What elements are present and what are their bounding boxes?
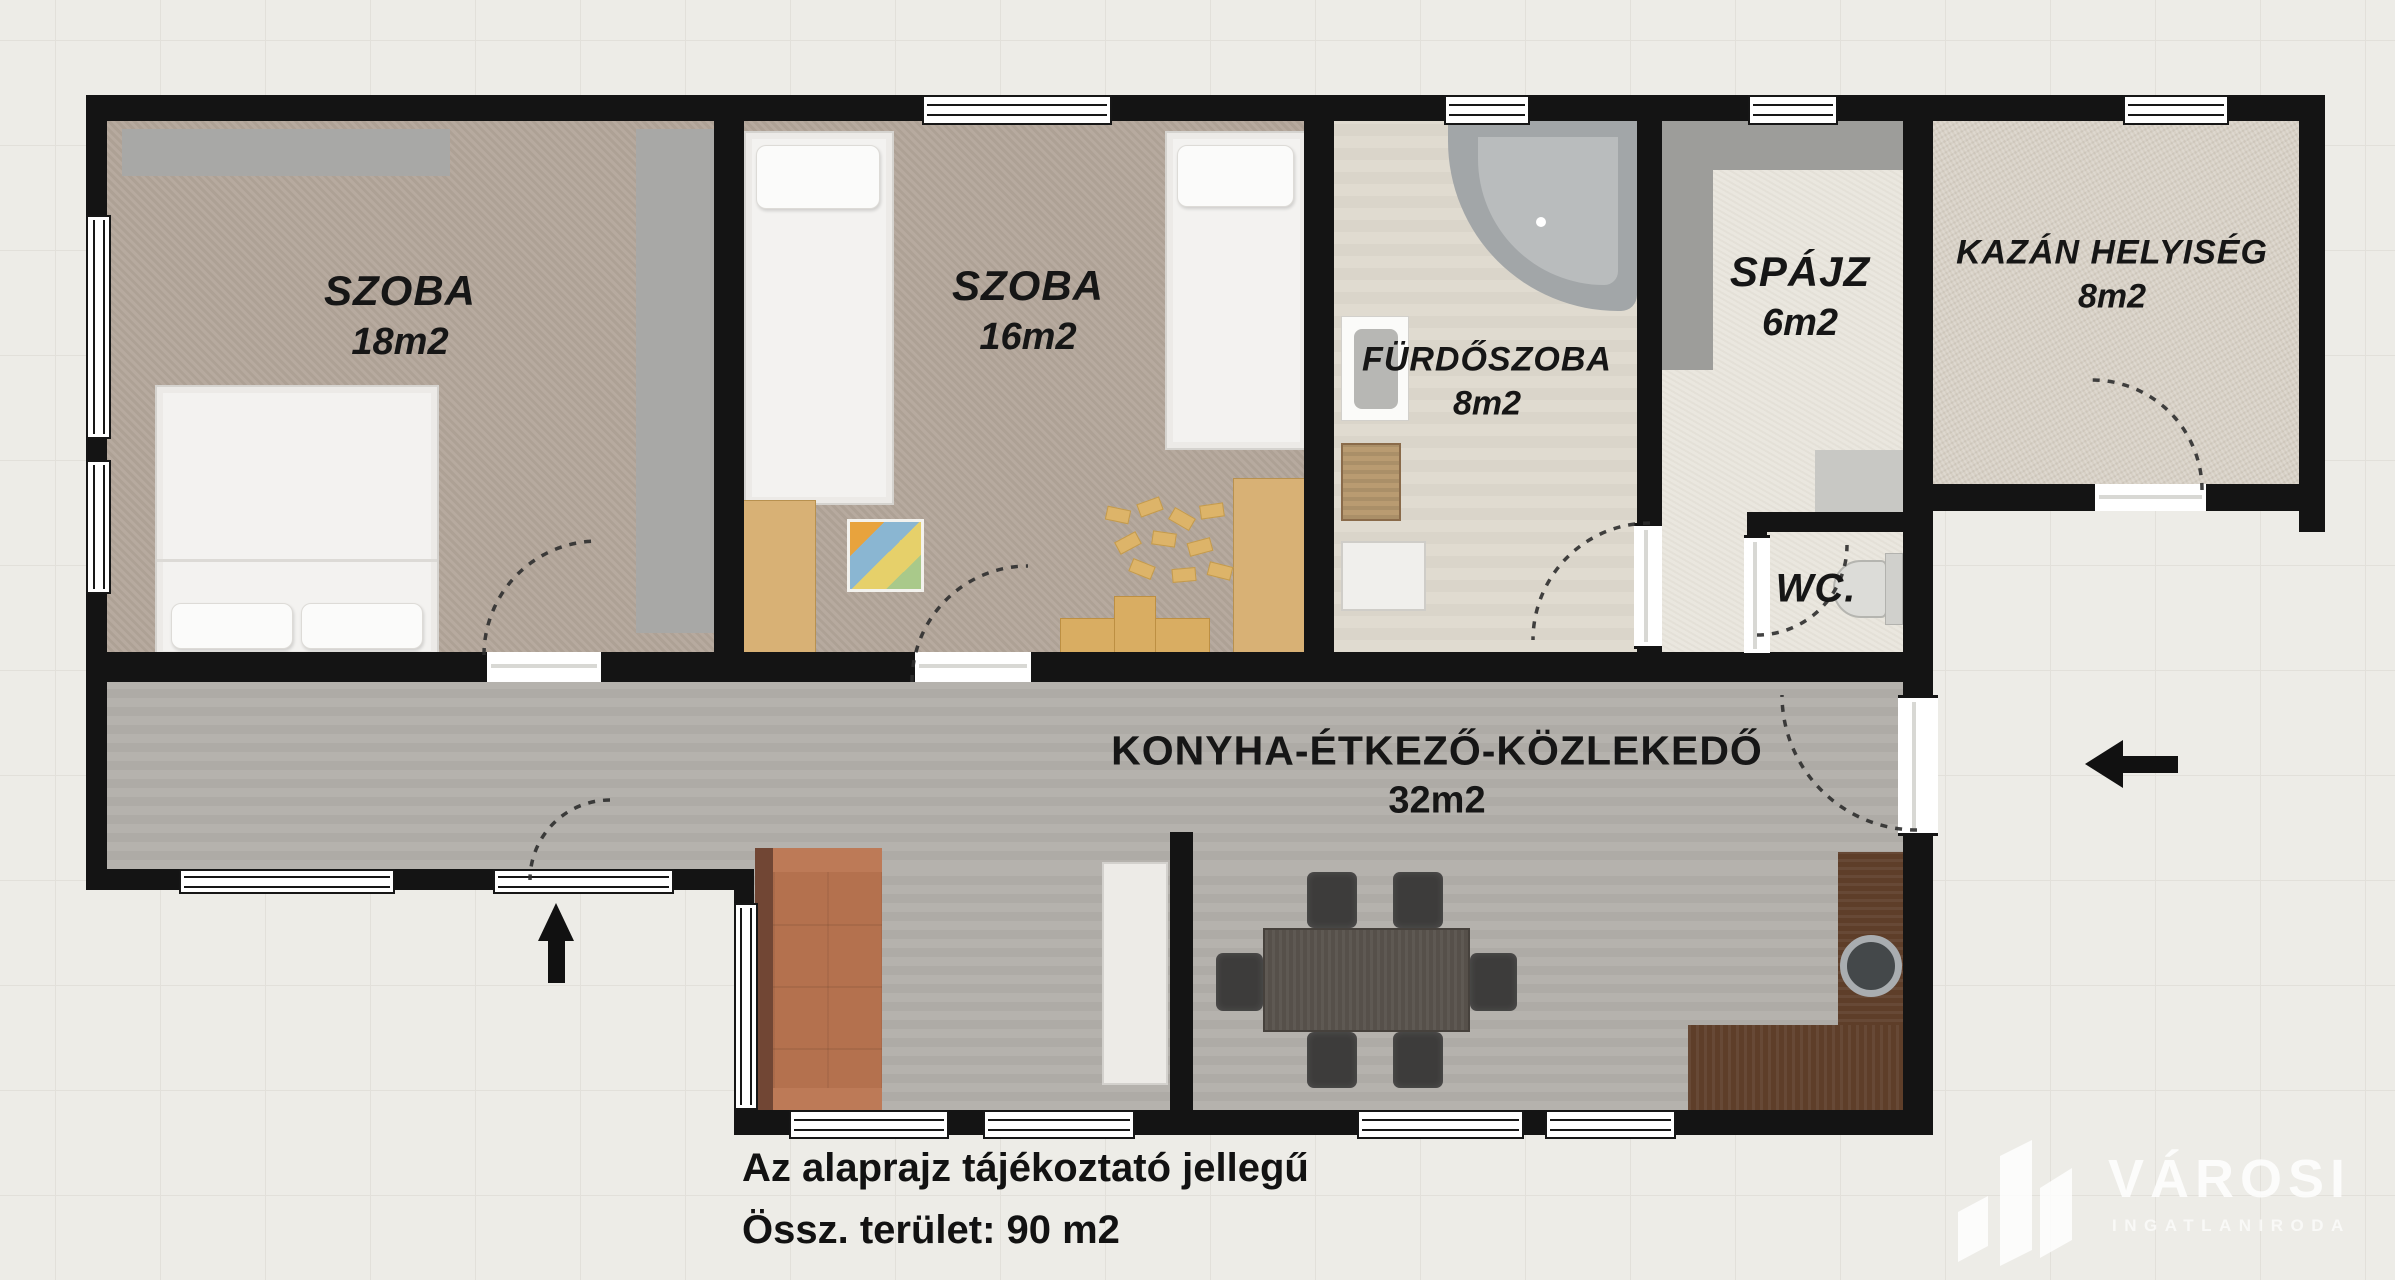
sofa xyxy=(755,848,882,1112)
kitchen-island xyxy=(1102,862,1168,1085)
pantry-shelf-left xyxy=(1662,170,1713,370)
room-label-bedroom-16: SZOBA 16m2 xyxy=(952,259,1104,361)
dining-chair xyxy=(1393,1032,1443,1088)
room-label-pantry: SPÁJZ 6m2 xyxy=(1730,245,1870,347)
door-boiler-room xyxy=(2092,484,2209,511)
window xyxy=(789,1110,949,1139)
room-area: 18m2 xyxy=(324,318,476,367)
double-bed xyxy=(155,385,439,659)
wall-top xyxy=(86,95,2325,121)
window xyxy=(179,869,395,894)
window xyxy=(1545,1110,1676,1139)
wardrobe-top xyxy=(122,129,450,176)
dining-chair xyxy=(1393,872,1443,928)
room-name: FÜRDŐSZOBA xyxy=(1362,338,1612,382)
window xyxy=(493,869,674,894)
pillow xyxy=(171,603,293,649)
single-bed-right xyxy=(1165,131,1308,450)
pantry-shelf-top xyxy=(1662,121,1903,170)
dining-table xyxy=(1263,928,1470,1032)
window xyxy=(1357,1110,1524,1139)
floor-plan-canvas: SZOBA 18m2 SZOBA 16m2 FÜRDŐSZOBA 8m2 SPÁ… xyxy=(0,0,2395,1280)
door-bedroom-18 xyxy=(484,652,604,682)
door-bathroom xyxy=(1634,523,1662,649)
kitchen-sink xyxy=(1840,935,1902,997)
room-name: KONYHA-ÉTKEZŐ-KÖZLEKEDŐ xyxy=(1111,724,1763,776)
room-name: SZOBA xyxy=(324,264,476,318)
dining-chair xyxy=(1307,1032,1357,1088)
window xyxy=(922,95,1112,125)
toy-blocks xyxy=(1100,498,1240,598)
room-area: 6m2 xyxy=(1730,299,1870,348)
single-bed-left xyxy=(744,131,894,505)
window xyxy=(1444,95,1530,125)
dining-chair xyxy=(1470,953,1517,1011)
window xyxy=(734,903,758,1110)
door-entrance xyxy=(1898,695,1938,836)
room-name: SZOBA xyxy=(952,259,1104,313)
bathroom-cabinet xyxy=(1341,541,1426,611)
pillow xyxy=(1177,145,1294,207)
room-label-bedroom-18: SZOBA 18m2 xyxy=(324,264,476,366)
room-name: WC. xyxy=(1776,563,1857,614)
room-area: 32m2 xyxy=(1111,777,1763,826)
bathtub-basin xyxy=(1478,137,1618,285)
wall-right xyxy=(1903,95,1933,1135)
caption-line-1: Az alaprajz tájékoztató jellegű xyxy=(742,1146,1309,1191)
room-name: SPÁJZ xyxy=(1730,245,1870,299)
room-name: KAZÁN HELYISÉG xyxy=(1956,231,2268,275)
door-wc xyxy=(1744,535,1770,656)
sofa-armrest xyxy=(773,1088,882,1112)
sofa-armrest xyxy=(773,848,882,872)
agency-logo-subtitle: INGATLANIRODA xyxy=(2112,1216,2351,1236)
room-area: 8m2 xyxy=(1956,275,2268,319)
wall-bedrooms-divider xyxy=(714,95,744,682)
toilet-tank xyxy=(1885,553,1903,625)
wall-kitchen-stub xyxy=(1170,832,1193,1135)
bathtub-drain xyxy=(1536,217,1546,227)
wall-boiler-right xyxy=(2299,95,2325,532)
window xyxy=(2123,95,2229,125)
room-label-kitchen: KONYHA-ÉTKEZŐ-KÖZLEKEDŐ 32m2 xyxy=(1111,724,1763,825)
wall-wc-top xyxy=(1747,512,1903,532)
room-label-bathroom: FÜRDŐSZOBA 8m2 xyxy=(1362,338,1612,425)
wall-bedroom-bathroom xyxy=(1304,95,1334,682)
washing-machine xyxy=(1341,443,1401,521)
pillow xyxy=(756,145,880,209)
door-bedroom-16 xyxy=(912,652,1034,682)
duvet-fold xyxy=(157,559,437,562)
pantry-shelf-corner xyxy=(1815,450,1903,512)
window xyxy=(983,1110,1135,1139)
pillow xyxy=(301,603,423,649)
sofa-seat xyxy=(773,848,882,1112)
kitchen-counter-bottom xyxy=(1688,1025,1905,1110)
room-label-boiler: KAZÁN HELYISÉG 8m2 xyxy=(1956,231,2268,318)
caption-line-2: Össz. terület: 90 m2 xyxy=(742,1208,1120,1253)
room-label-wc: WC. xyxy=(1776,563,1857,614)
dining-chair xyxy=(1216,953,1263,1011)
play-mat xyxy=(847,519,924,592)
room-area: 8m2 xyxy=(1362,382,1612,426)
wardrobe-right xyxy=(636,129,714,633)
room-area: 16m2 xyxy=(952,313,1104,362)
dining-chair xyxy=(1307,872,1357,928)
agency-logo-title: VÁROSI xyxy=(2108,1148,2351,1210)
window xyxy=(1748,95,1838,125)
window xyxy=(86,460,111,594)
window xyxy=(86,215,111,439)
